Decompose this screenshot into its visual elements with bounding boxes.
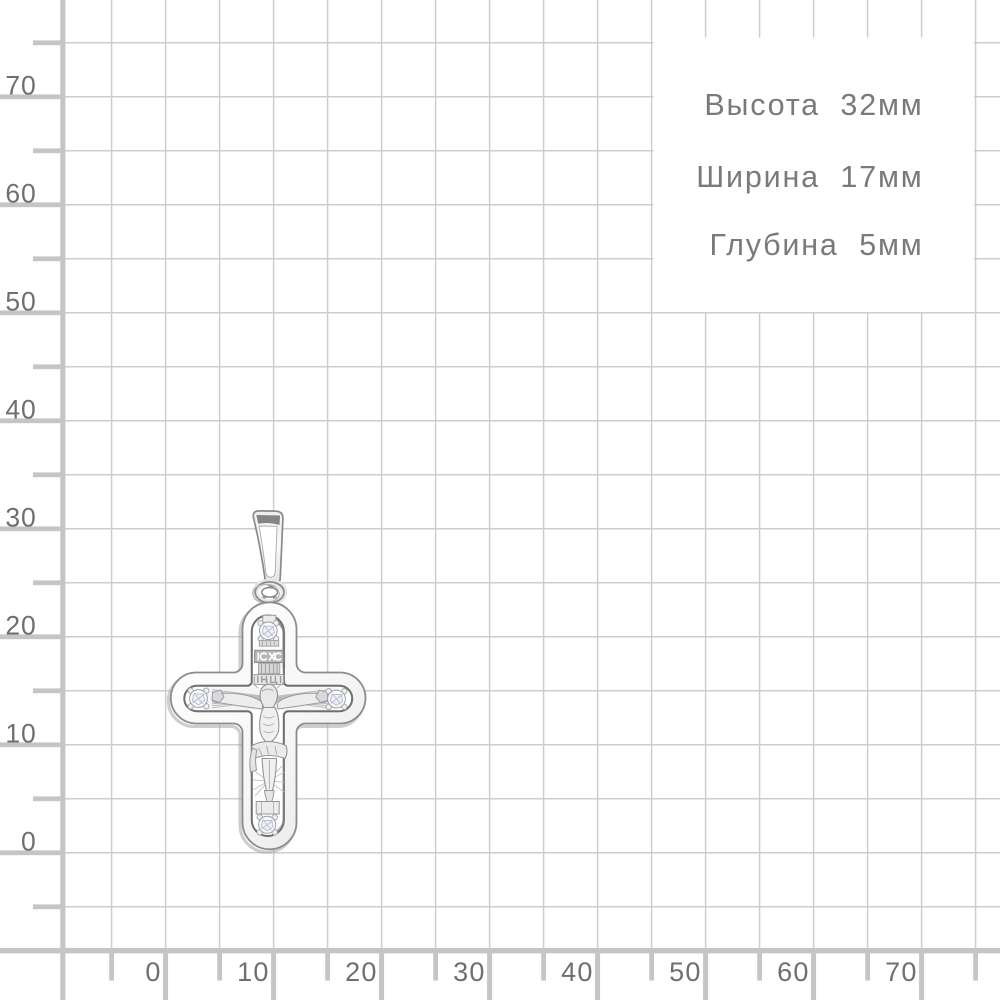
- svg-text:20: 20: [345, 957, 377, 987]
- svg-text:40: 40: [561, 957, 593, 987]
- svg-text:60: 60: [777, 957, 809, 987]
- svg-text:10: 10: [5, 718, 36, 748]
- svg-text:40: 40: [5, 394, 36, 424]
- svg-text:50: 50: [669, 957, 701, 987]
- svg-text:Глубина 5мм: Глубина 5мм: [710, 228, 924, 262]
- svg-text:60: 60: [5, 178, 36, 208]
- svg-text:Ширина 17мм: Ширина 17мм: [696, 160, 923, 194]
- svg-text:70: 70: [5, 70, 36, 100]
- svg-text:70: 70: [885, 957, 917, 987]
- svg-text:20: 20: [5, 610, 36, 640]
- svg-text:50: 50: [5, 286, 36, 316]
- svg-text:30: 30: [453, 957, 485, 987]
- svg-text:Высота 32мм: Высота 32мм: [704, 88, 923, 122]
- svg-text:0: 0: [21, 826, 37, 856]
- svg-text:0: 0: [145, 957, 161, 987]
- svg-text:30: 30: [5, 502, 36, 532]
- svg-text:10: 10: [237, 957, 269, 987]
